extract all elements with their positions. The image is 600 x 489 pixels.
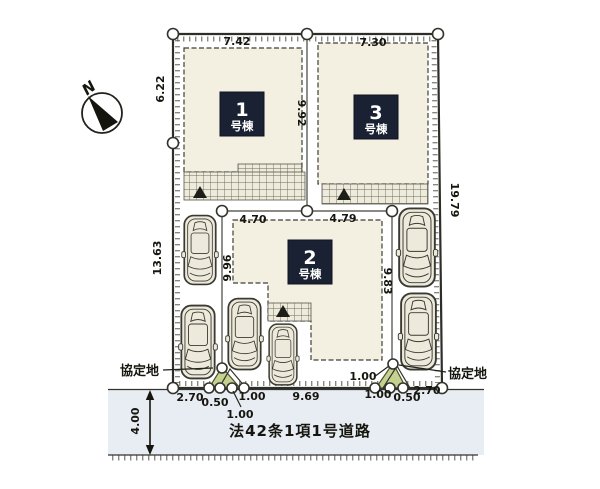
boundary-marker [204, 383, 214, 393]
dim-left-upper: 6.22 [154, 75, 167, 102]
boundary-marker [217, 206, 228, 217]
building-1-number: 1 [235, 99, 248, 121]
dim-road-width: 4.00 [129, 407, 142, 434]
dim-bottom-969: 9.69 [292, 390, 319, 403]
dim-plot2-right: 9.83 [381, 267, 394, 294]
north-label: N [78, 77, 99, 99]
dim-bottom-l-100a: 1.00 [238, 390, 265, 403]
building-3: 3 号棟 [318, 43, 428, 204]
car-plot2-left [226, 299, 264, 370]
boundary-marker [168, 138, 179, 149]
dim-bottom-l-100b: 1.00 [226, 408, 253, 421]
boundary-marker [227, 383, 237, 393]
dim-bottom-r-270: 2.70 [413, 384, 440, 397]
boundary-marker [387, 206, 398, 217]
agreement-left-label: 協定地 [120, 363, 159, 379]
boundary-marker [302, 206, 313, 217]
boundary-marker [302, 29, 313, 40]
dim-mid-divider: 9.92 [295, 99, 308, 126]
car-plot2-center [267, 324, 299, 385]
boundary-marker [433, 29, 444, 40]
road-label: 法42条1項1号道路 [229, 422, 371, 440]
dim-bottom-l-270: 2.70 [176, 391, 203, 404]
building-2-suffix: 号棟 [299, 267, 322, 281]
compass-needle-icon [88, 96, 118, 131]
boundary-marker [388, 359, 398, 369]
boundary-marker [217, 363, 227, 373]
dim-right-side: 19.79 [448, 183, 461, 218]
building-1: 1 号棟 [184, 48, 305, 200]
dim-bottom-r-100b: 1.00 [364, 388, 391, 401]
building-3-porch [322, 184, 428, 204]
agreement-right-label: 協定地 [448, 366, 487, 382]
north-arrow: N [78, 77, 122, 133]
car-right-strip-1 [396, 208, 437, 286]
car-right-strip-2 [398, 293, 438, 369]
site-plan: 法42条1項1号道路 1 号棟 3 号棟 2 [0, 0, 600, 489]
building-2-number: 2 [303, 247, 316, 269]
dim-plot2-top-right: 4.79 [329, 212, 356, 225]
dim-plot2-left: 9.96 [221, 254, 234, 281]
dim-bottom-l-050: 0.50 [201, 396, 228, 409]
building-3-suffix: 号棟 [365, 122, 388, 136]
boundary-marker [215, 383, 225, 393]
dim-plot2-top-left: 4.70 [239, 213, 266, 226]
dim-top-right: 7.30 [359, 36, 386, 49]
car-left-strip-1 [182, 216, 219, 285]
building-1-suffix: 号棟 [231, 119, 254, 133]
boundary-marker [168, 29, 179, 40]
building-2-porch [268, 303, 311, 321]
dim-bottom-r-100a: 1.00 [349, 370, 376, 383]
dim-left-lower: 13.63 [151, 241, 164, 276]
site-plan-page: 法42条1項1号道路 1 号棟 3 号棟 2 [0, 0, 600, 489]
dim-top-left: 7.42 [223, 35, 250, 48]
building-3-number: 3 [369, 102, 382, 124]
